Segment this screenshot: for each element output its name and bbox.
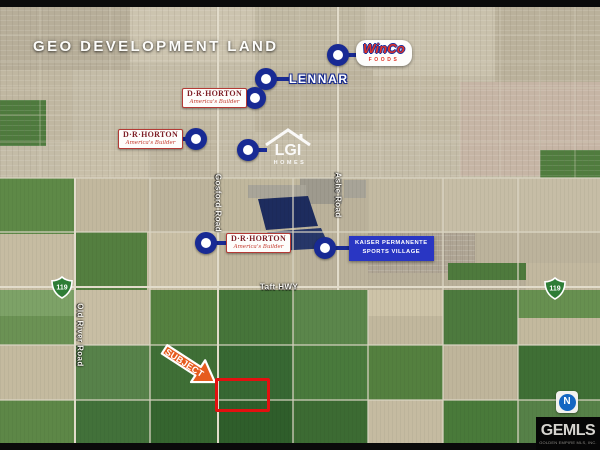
gemls-watermark: GEMLS GOLDEN EMPIRE MLS, INC. [536,417,600,450]
gemls-subtitle: GOLDEN EMPIRE MLS, INC. [539,440,597,445]
lennar-logo: LENNAR [289,72,349,86]
road-label-taft: Taft HWY [260,283,298,292]
dr-horton-3-map-pin [195,232,217,254]
lgi-logo-text: LGI [275,142,302,159]
highway-119-left-text: 119 [56,285,67,292]
kaiser-line1: KAISER PERMANENTE [355,239,428,248]
lennar-connector [275,77,289,81]
dr-horton-1-logo: D·R·HORTON America's Builder [182,88,247,108]
road-label-old-river: Old River Road [76,303,85,366]
winco-map-pin [327,44,349,66]
lgi-map-pin [237,139,259,161]
aerial-basemap [0,0,600,450]
kaiser-map-pin [314,237,336,259]
dr-horton-2-map-pin [185,128,207,150]
road-label-gosford: Gosford Road [214,174,223,232]
dr-horton-3-name: D·R·HORTON [231,235,286,244]
winco-foods-logo: WinCo FOODS [356,40,412,66]
subject-arrow-text: SUBJECT [163,347,206,380]
highway-119-shield-left: 119 [51,276,73,299]
dr-horton-2-name: D·R·HORTON [123,131,178,140]
page-title: GEO DEVELOPMENT LAND [33,38,279,55]
winco-logo-text: WinCo [363,42,405,56]
compass-north-icon: N [556,391,578,413]
highway-119-right-text: 119 [549,286,560,293]
subject-parcel-outline [215,378,270,412]
aerial-map-flyer: GEO DEVELOPMENT LAND Gosford Road Ashe R… [0,0,600,450]
dr-horton-3-tagline: America's Builder [231,244,286,250]
dr-horton-1-name: D·R·HORTON [187,90,242,99]
kaiser-sports-village-sign: KAISER PERMANENTE SPORTS VILLAGE [349,236,434,261]
winco-foods-text: FOODS [363,57,405,63]
compass-circle: N [559,394,576,411]
bottom-letterbox [0,443,600,450]
dr-horton-1-map-pin [244,87,266,109]
dr-horton-2-logo: D·R·HORTON America's Builder [118,129,183,149]
dr-horton-1-tagline: America's Builder [187,99,242,105]
compass-n-letter: N [563,397,570,407]
road-label-ashe: Ashe Road [334,172,343,217]
kaiser-line2: SPORTS VILLAGE [355,248,428,257]
lgi-homes-text: HOMES [274,160,307,166]
lgi-homes-logo: LGI HOMES [263,126,313,168]
top-letterbox [0,0,600,7]
dr-horton-2-tagline: America's Builder [123,140,178,146]
highway-119-shield-right: 119 [544,277,566,300]
dr-horton-3-logo: D·R·HORTON America's Builder [226,233,291,253]
gemls-logo-text: GEMLS [541,423,595,439]
